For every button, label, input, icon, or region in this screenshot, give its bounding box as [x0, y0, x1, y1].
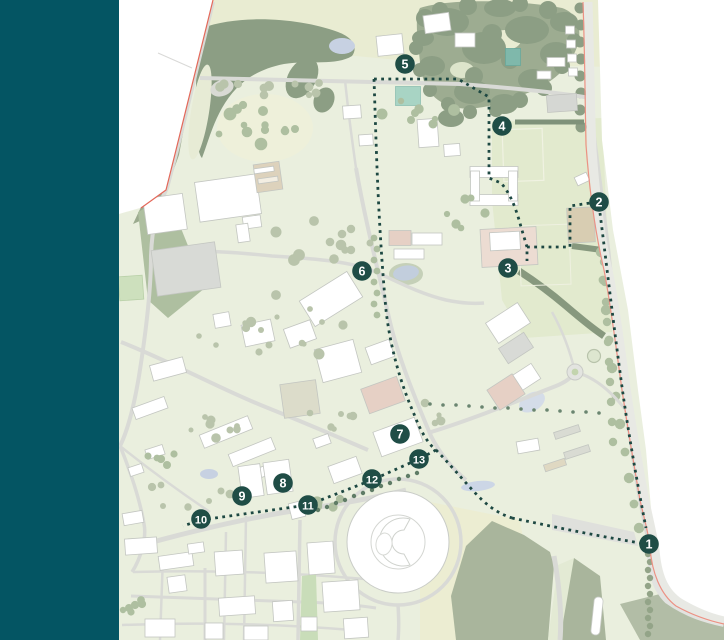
svg-text:5: 5: [402, 57, 409, 71]
svg-text:11: 11: [302, 500, 314, 512]
svg-text:8: 8: [280, 476, 287, 490]
svg-text:1: 1: [646, 537, 653, 551]
svg-text:12: 12: [366, 474, 378, 486]
svg-text:3: 3: [505, 261, 512, 275]
svg-text:9: 9: [239, 489, 246, 503]
svg-text:4: 4: [499, 119, 506, 133]
svg-text:6: 6: [359, 264, 366, 278]
svg-text:13: 13: [413, 454, 425, 466]
svg-text:2: 2: [596, 195, 603, 209]
svg-text:7: 7: [397, 427, 404, 441]
svg-text:10: 10: [195, 514, 207, 526]
